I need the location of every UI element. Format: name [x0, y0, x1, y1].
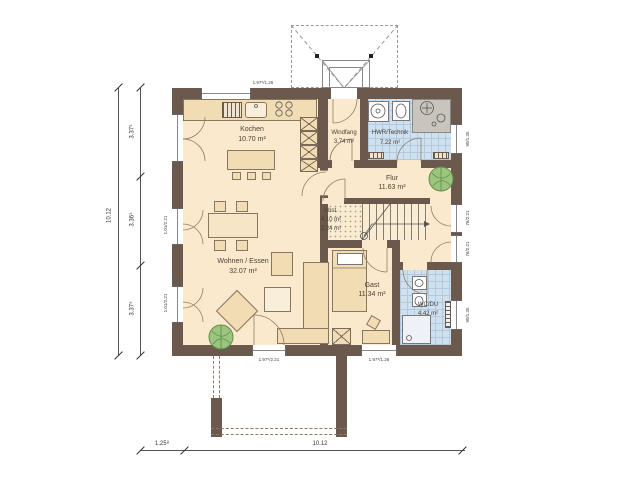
- kitchen-window-casement: [183, 139, 205, 161]
- floor-plan-canvas: 10.12 3.37⁵ 3.36⁴ 3.37⁵ 1.25⁸ 10.12: [0, 0, 640, 480]
- room-label-abst: Abst.: [316, 208, 346, 215]
- room-label-windfang: Windfang: [324, 130, 364, 137]
- canopy-post-dot: [369, 54, 373, 58]
- room-label-gast: Gast: [356, 282, 388, 290]
- canopy-post-dot: [315, 54, 319, 58]
- room-area-windfang: 3.74 m²: [324, 139, 364, 146]
- stair-arrow: [424, 221, 430, 227]
- room-area2-abst: 2.24 m²: [316, 226, 346, 233]
- plant-icon: [429, 167, 453, 191]
- room-label-wohnen: Wohnen / Essen: [210, 258, 276, 266]
- room-area-flur: 11.63 m²: [372, 184, 412, 192]
- room-label-flur: Flur: [372, 175, 412, 183]
- hwr-appliance-icons: [371, 102, 445, 127]
- room-area-hwr: 7.22 m²: [362, 140, 418, 147]
- porch-diagonals: [322, 60, 370, 88]
- room-area-gast: 11.34 m²: [352, 291, 392, 299]
- canopy-diagonals: [291, 25, 398, 88]
- room-label-wc: WC/DU: [408, 302, 448, 309]
- room-area-kochen: 10.70 m²: [230, 136, 274, 144]
- terrace-door-arc: [254, 315, 284, 345]
- front-door-arc: [333, 99, 357, 123]
- sanitary-icons: [407, 280, 424, 341]
- flur-window-casement: [431, 206, 451, 226]
- flur-window-casement: [431, 242, 451, 262]
- symbol-overlay: [0, 0, 640, 480]
- room-area-wc: 4.42 m²: [408, 311, 448, 318]
- room-area-abst: 4.10 m²: [316, 217, 346, 224]
- room-label-hwr: HWR/Technik: [362, 130, 418, 137]
- stair-symbols: [361, 204, 425, 240]
- plant-icon: [209, 325, 233, 349]
- wohnen-window-casement: [183, 302, 203, 322]
- wohnen-door-arc: [302, 172, 326, 196]
- hob-icon: [255, 102, 293, 116]
- room-label-kochen: Kochen: [230, 126, 274, 134]
- room-area-wohnen: 32.07 m²: [210, 268, 276, 276]
- wohnen-window-casement: [183, 224, 203, 244]
- kitchen-window-casement: [183, 117, 205, 139]
- abst-door-arc: [323, 179, 345, 201]
